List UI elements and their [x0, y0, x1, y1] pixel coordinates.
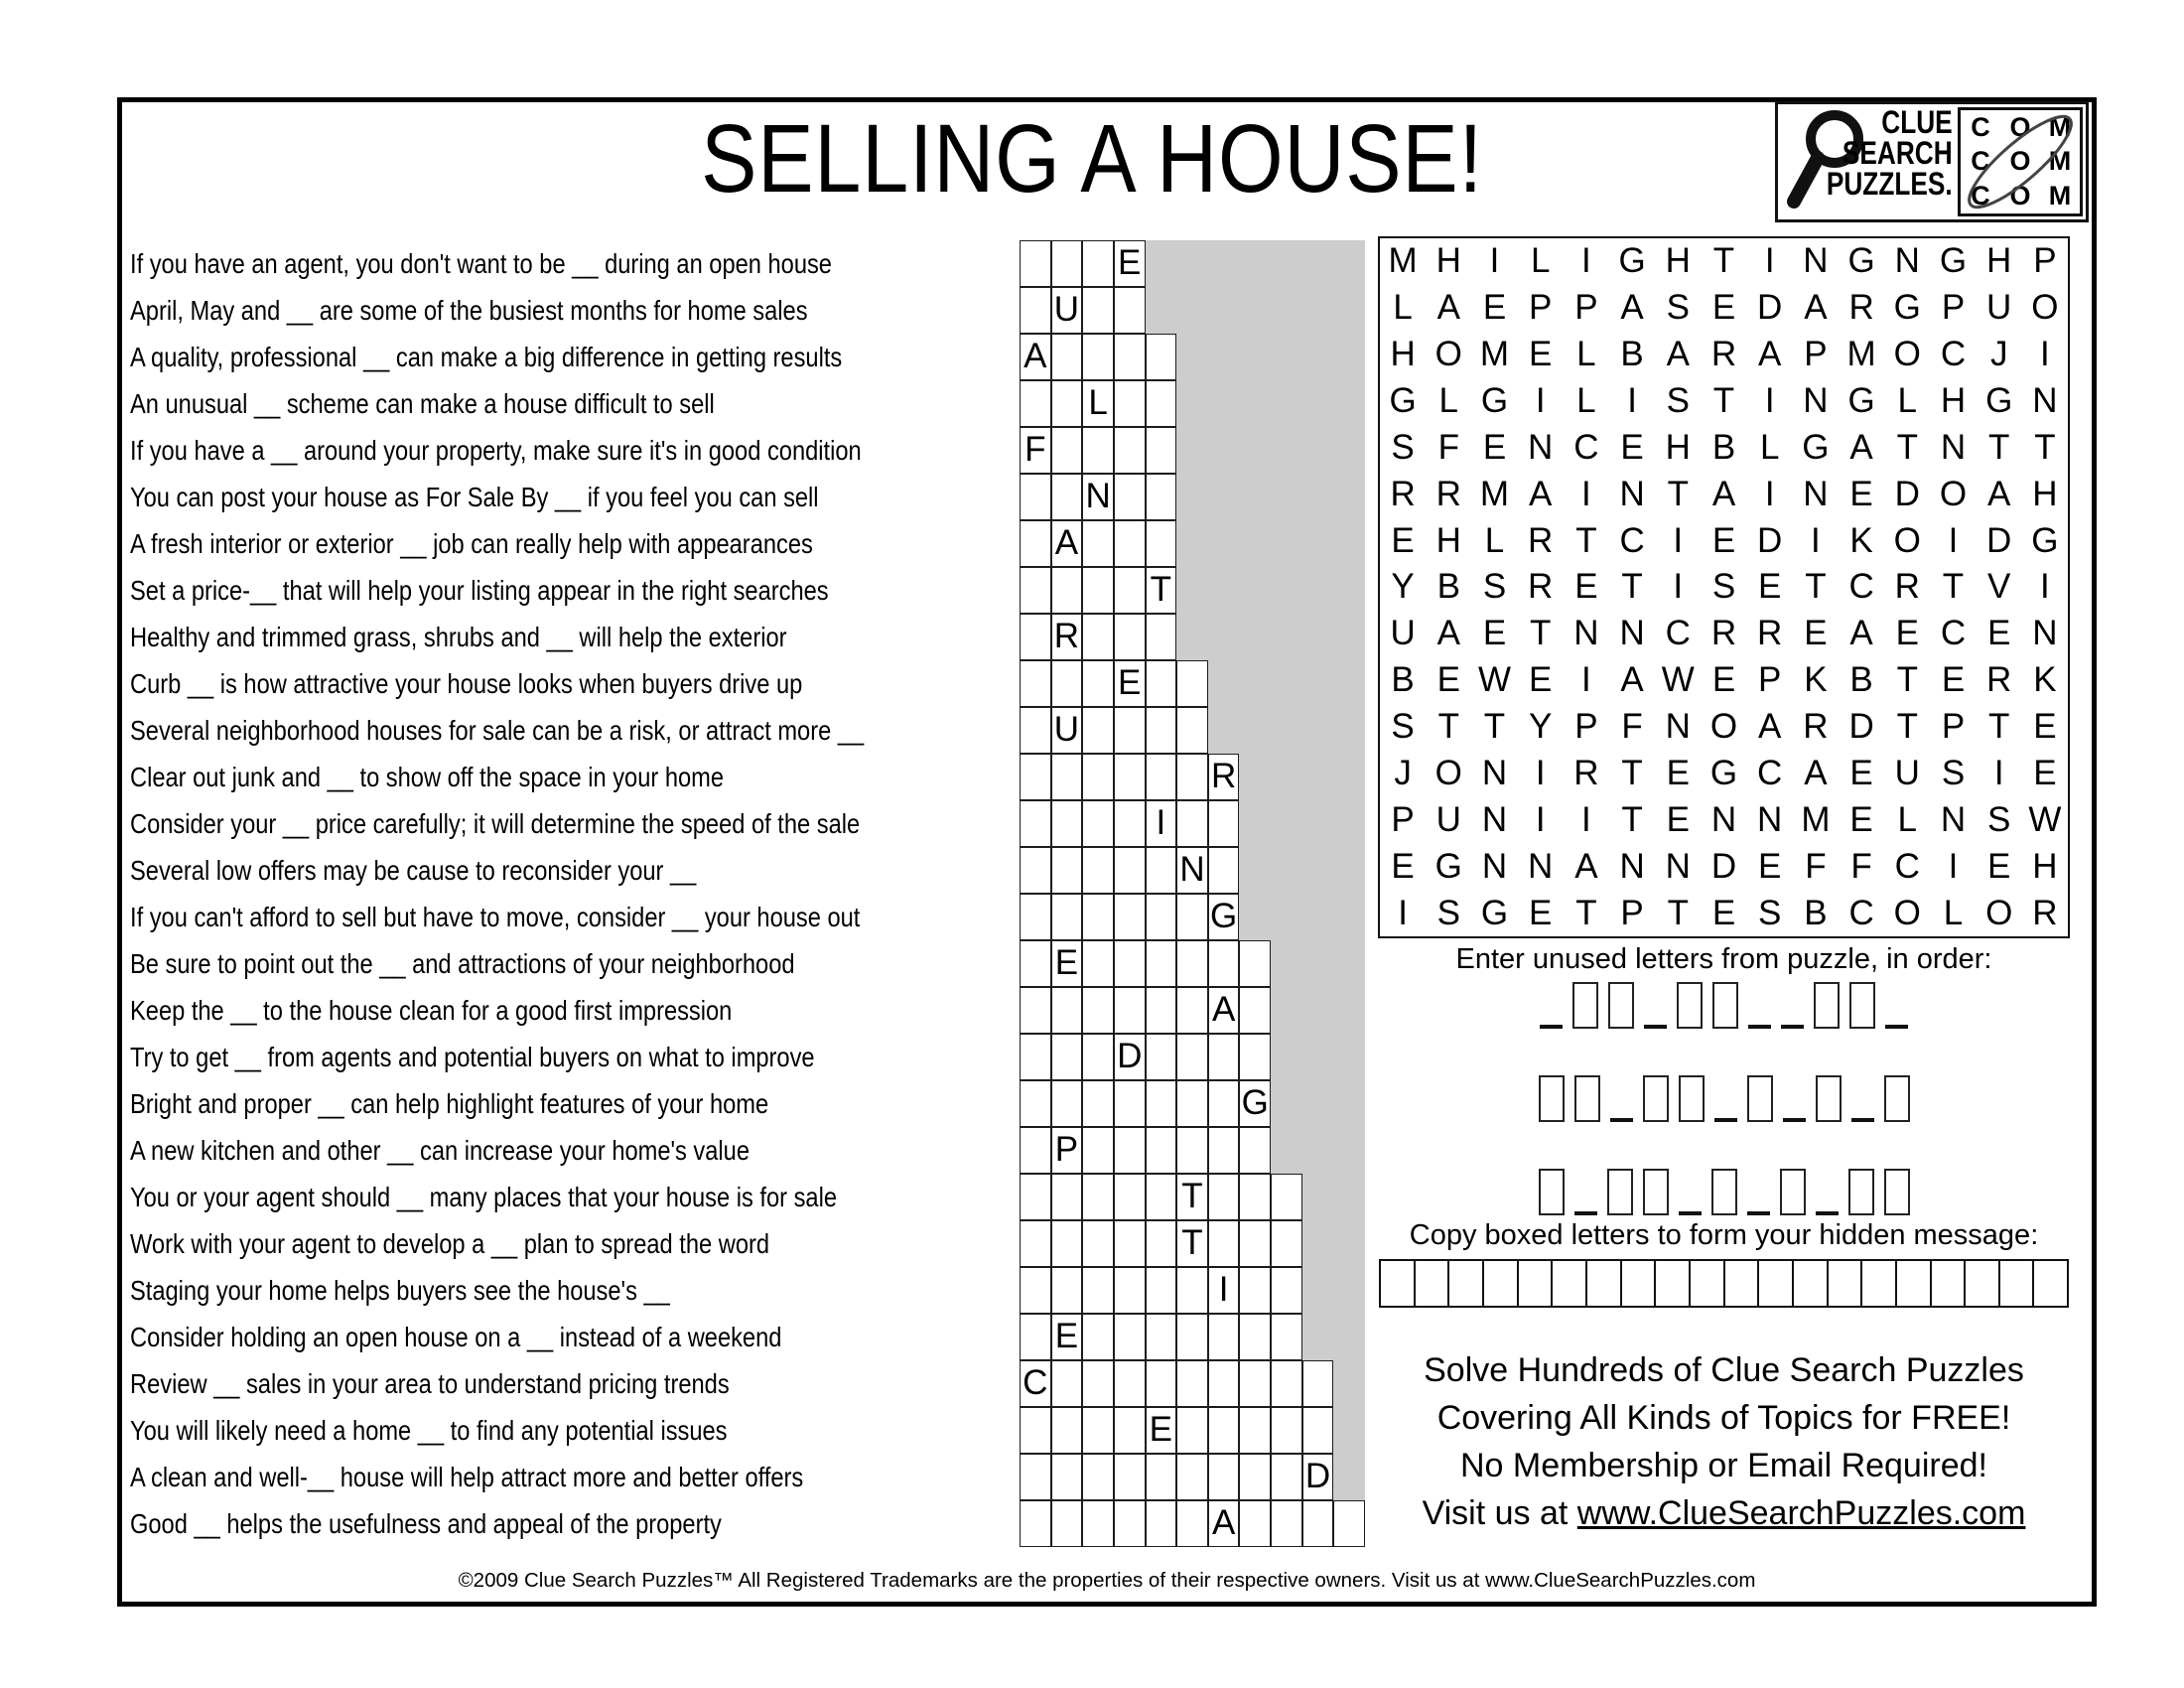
- wordsearch-letter[interactable]: G: [1930, 238, 1976, 285]
- wordsearch-letter[interactable]: O: [1930, 471, 1976, 517]
- boxed-letter-slot[interactable]: [1607, 1169, 1633, 1215]
- crossword-cell[interactable]: [1114, 287, 1146, 334]
- crossword-cell[interactable]: [1114, 1454, 1146, 1500]
- crossword-cell[interactable]: [1176, 707, 1208, 754]
- wordsearch-letter[interactable]: A: [1793, 285, 1839, 332]
- crossword-cell[interactable]: [1302, 1500, 1334, 1547]
- boxed-letter-slot[interactable]: [1608, 982, 1634, 1029]
- wordsearch-letter[interactable]: S: [1977, 796, 2022, 843]
- wordsearch-letter[interactable]: N: [1609, 843, 1655, 890]
- crossword-cell[interactable]: [1114, 1500, 1146, 1547]
- crossword-cell[interactable]: [1082, 800, 1114, 847]
- crossword-cell[interactable]: [1146, 894, 1177, 940]
- wordsearch-letter[interactable]: A: [1839, 611, 1884, 657]
- wordsearch-letter[interactable]: L: [1930, 890, 1976, 936]
- wordsearch-letter[interactable]: B: [1839, 657, 1884, 704]
- wordsearch-letter[interactable]: H: [1426, 517, 1471, 564]
- wordsearch-letter[interactable]: A: [1426, 285, 1471, 332]
- crossword-cell[interactable]: [1146, 427, 1177, 474]
- wordsearch-letter[interactable]: E: [2022, 704, 2068, 751]
- wordsearch-letter[interactable]: T: [1701, 378, 1746, 425]
- hidden-message-cell[interactable]: [1794, 1261, 1829, 1306]
- wordsearch-letter[interactable]: P: [1793, 332, 1839, 378]
- crossword-cell[interactable]: [1082, 520, 1114, 567]
- wordsearch-letter[interactable]: P: [2022, 238, 2068, 285]
- crossword-cell[interactable]: [1020, 800, 1051, 847]
- boxed-letter-slot[interactable]: [1780, 1169, 1806, 1215]
- crossword-cell[interactable]: E: [1146, 1407, 1177, 1454]
- wordsearch-letter[interactable]: J: [1977, 332, 2022, 378]
- wordsearch-letter[interactable]: I: [1564, 238, 1609, 285]
- crossword-cell[interactable]: [1208, 1314, 1240, 1360]
- boxed-letter-slot[interactable]: [1643, 1075, 1669, 1122]
- crossword-cell[interactable]: [1239, 1034, 1271, 1080]
- wordsearch-letter[interactable]: D: [1839, 704, 1884, 751]
- crossword-cell[interactable]: [1082, 240, 1114, 287]
- wordsearch-letter[interactable]: I: [1655, 517, 1701, 564]
- wordsearch-letter[interactable]: E: [1518, 890, 1564, 936]
- crossword-cell[interactable]: A: [1208, 987, 1240, 1034]
- crossword-cell[interactable]: [1020, 1500, 1051, 1547]
- crossword-cell[interactable]: [1239, 1127, 1271, 1174]
- wordsearch-letter[interactable]: N: [1793, 238, 1839, 285]
- blank-letter-slot[interactable]: [1644, 1025, 1667, 1029]
- crossword-cell[interactable]: [1146, 1220, 1177, 1267]
- wordsearch-letter[interactable]: T: [1518, 611, 1564, 657]
- crossword-cell[interactable]: [1239, 1314, 1271, 1360]
- wordsearch-letter[interactable]: E: [1930, 657, 1976, 704]
- crossword-cell[interactable]: [1082, 1454, 1114, 1500]
- wordsearch-letter[interactable]: T: [1884, 704, 1930, 751]
- crossword-cell[interactable]: E: [1051, 940, 1083, 987]
- wordsearch-letter[interactable]: T: [1609, 751, 1655, 797]
- hidden-message-cell[interactable]: [1656, 1261, 1691, 1306]
- wordsearch-letter[interactable]: N: [1564, 611, 1609, 657]
- crossword-cell[interactable]: T: [1176, 1220, 1208, 1267]
- crossword-cell[interactable]: [1020, 614, 1051, 660]
- crossword-cell[interactable]: N: [1176, 847, 1208, 894]
- crossword-cell[interactable]: [1082, 287, 1114, 334]
- crossword-cell[interactable]: [1176, 894, 1208, 940]
- wordsearch-letter[interactable]: F: [1793, 843, 1839, 890]
- crossword-cell[interactable]: U: [1051, 707, 1083, 754]
- crossword-cell[interactable]: [1146, 1127, 1177, 1174]
- wordsearch-letter[interactable]: W: [1655, 657, 1701, 704]
- crossword-cell[interactable]: [1146, 1034, 1177, 1080]
- crossword-cell[interactable]: [1020, 707, 1051, 754]
- wordsearch-letter[interactable]: O: [2022, 285, 2068, 332]
- crossword-cell[interactable]: [1114, 1314, 1146, 1360]
- crossword-cell[interactable]: [1082, 1500, 1114, 1547]
- promo-website-link[interactable]: www.ClueSearchPuzzles.com: [1577, 1494, 2026, 1532]
- boxed-letter-slot[interactable]: [1884, 1075, 1910, 1122]
- wordsearch-letter[interactable]: G: [1793, 424, 1839, 471]
- wordsearch-letter[interactable]: N: [1518, 424, 1564, 471]
- crossword-cell[interactable]: [1302, 1407, 1334, 1454]
- wordsearch-letter[interactable]: C: [1655, 611, 1701, 657]
- wordsearch-letter[interactable]: T: [1884, 424, 1930, 471]
- wordsearch-letter[interactable]: I: [1471, 238, 1517, 285]
- crossword-cell[interactable]: [1146, 334, 1177, 380]
- crossword-cell[interactable]: [1176, 754, 1208, 800]
- crossword-cell[interactable]: [1239, 1174, 1271, 1220]
- wordsearch-letter[interactable]: O: [1977, 890, 2022, 936]
- crossword-cell[interactable]: [1082, 427, 1114, 474]
- wordsearch-letter[interactable]: I: [1977, 751, 2022, 797]
- wordsearch-letter[interactable]: E: [1564, 564, 1609, 611]
- blank-letter-slot[interactable]: [1781, 1025, 1804, 1029]
- wordsearch-letter[interactable]: R: [1747, 611, 1793, 657]
- crossword-cell[interactable]: [1146, 1314, 1177, 1360]
- wordsearch-letter[interactable]: G: [1471, 890, 1517, 936]
- wordsearch-letter[interactable]: S: [1426, 890, 1471, 936]
- wordsearch-letter[interactable]: R: [2022, 890, 2068, 936]
- wordsearch-letter[interactable]: E: [1839, 796, 1884, 843]
- wordsearch-letter[interactable]: G: [1471, 378, 1517, 425]
- crossword-cell[interactable]: [1114, 1407, 1146, 1454]
- crossword-cell[interactable]: C: [1020, 1360, 1051, 1407]
- crossword-cell[interactable]: T: [1146, 567, 1177, 614]
- wordsearch-letter[interactable]: Y: [1518, 704, 1564, 751]
- wordsearch-letter[interactable]: T: [1884, 657, 1930, 704]
- wordsearch-letter[interactable]: I: [2022, 332, 2068, 378]
- wordsearch-letter[interactable]: D: [1747, 517, 1793, 564]
- crossword-cell[interactable]: [1051, 1500, 1083, 1547]
- wordsearch-letter[interactable]: B: [1426, 564, 1471, 611]
- hidden-message-cell[interactable]: [1449, 1261, 1484, 1306]
- blank-letter-slot[interactable]: [1783, 1118, 1806, 1122]
- wordsearch-letter[interactable]: N: [1655, 843, 1701, 890]
- wordsearch-letter[interactable]: I: [1930, 517, 1976, 564]
- crossword-cell[interactable]: [1114, 754, 1146, 800]
- crossword-cell[interactable]: R: [1208, 754, 1240, 800]
- wordsearch-letter[interactable]: N: [1930, 424, 1976, 471]
- crossword-cell[interactable]: [1114, 334, 1146, 380]
- wordsearch-letter[interactable]: J: [1380, 751, 1426, 797]
- wordsearch-letter[interactable]: A: [1426, 611, 1471, 657]
- crossword-cell[interactable]: [1208, 1080, 1240, 1127]
- crossword-cell[interactable]: [1114, 847, 1146, 894]
- wordsearch-letter[interactable]: N: [1701, 796, 1746, 843]
- crossword-cell[interactable]: [1051, 380, 1083, 427]
- crossword-cell[interactable]: [1082, 614, 1114, 660]
- hidden-message-cell[interactable]: [1862, 1261, 1897, 1306]
- hidden-message-cell[interactable]: [2000, 1261, 2035, 1306]
- crossword-cell[interactable]: [1208, 940, 1240, 987]
- wordsearch-letter[interactable]: I: [2022, 564, 2068, 611]
- hidden-message-cell[interactable]: [1759, 1261, 1794, 1306]
- wordsearch-letter[interactable]: T: [1564, 890, 1609, 936]
- hidden-message-cell[interactable]: [2034, 1261, 2067, 1306]
- crossword-cell[interactable]: R: [1051, 614, 1083, 660]
- wordsearch-letter[interactable]: A: [1793, 751, 1839, 797]
- crossword-cell[interactable]: [1239, 1407, 1271, 1454]
- crossword-cell[interactable]: [1146, 660, 1177, 707]
- wordsearch-letter[interactable]: E: [1471, 285, 1517, 332]
- crossword-cell[interactable]: [1176, 1314, 1208, 1360]
- wordsearch-letter[interactable]: A: [1518, 471, 1564, 517]
- crossword-cell[interactable]: [1114, 1174, 1146, 1220]
- crossword-cell[interactable]: [1051, 1267, 1083, 1314]
- wordsearch-letter[interactable]: E: [2022, 751, 2068, 797]
- wordsearch-letter[interactable]: I: [1518, 378, 1564, 425]
- crossword-cell[interactable]: [1020, 1080, 1051, 1127]
- wordsearch-letter[interactable]: T: [1930, 564, 1976, 611]
- hidden-message-cell[interactable]: [1691, 1261, 1725, 1306]
- crossword-cell[interactable]: [1051, 987, 1083, 1034]
- crossword-cell[interactable]: [1051, 1080, 1083, 1127]
- hidden-message-cell[interactable]: [1553, 1261, 1587, 1306]
- crossword-cell[interactable]: [1051, 240, 1083, 287]
- crossword-cell[interactable]: [1020, 660, 1051, 707]
- crossword-cell[interactable]: [1146, 847, 1177, 894]
- crossword-cell[interactable]: [1146, 380, 1177, 427]
- wordsearch-letter[interactable]: S: [1655, 285, 1701, 332]
- crossword-cell[interactable]: [1051, 1034, 1083, 1080]
- wordsearch-letter[interactable]: L: [1884, 796, 1930, 843]
- wordsearch-letter[interactable]: T: [1655, 471, 1701, 517]
- blank-letter-slot[interactable]: [1574, 1211, 1597, 1215]
- wordsearch-letter[interactable]: N: [1793, 378, 1839, 425]
- crossword-cell[interactable]: [1082, 754, 1114, 800]
- crossword-cell[interactable]: [1114, 800, 1146, 847]
- blank-letter-slot[interactable]: [1851, 1118, 1874, 1122]
- crossword-cell[interactable]: [1239, 987, 1271, 1034]
- crossword-cell[interactable]: [1208, 1034, 1240, 1080]
- boxed-letter-slot[interactable]: [1677, 982, 1703, 1029]
- wordsearch-letter[interactable]: S: [1655, 378, 1701, 425]
- wordsearch-letter[interactable]: S: [1701, 564, 1746, 611]
- blank-letter-slot[interactable]: [1679, 1211, 1702, 1215]
- wordsearch-letter[interactable]: L: [1747, 424, 1793, 471]
- wordsearch-letter[interactable]: P: [1609, 890, 1655, 936]
- hidden-message-cell[interactable]: [1519, 1261, 1554, 1306]
- wordsearch-letter[interactable]: T: [1564, 517, 1609, 564]
- wordsearch-letter[interactable]: C: [1564, 424, 1609, 471]
- wordsearch-letter[interactable]: A: [1609, 285, 1655, 332]
- crossword-cell[interactable]: [1082, 1127, 1114, 1174]
- wordsearch-letter[interactable]: I: [1518, 751, 1564, 797]
- wordsearch-letter[interactable]: E: [1518, 657, 1564, 704]
- wordsearch-letter[interactable]: E: [1839, 751, 1884, 797]
- wordsearch-letter[interactable]: E: [1655, 751, 1701, 797]
- wordsearch-letter[interactable]: T: [1793, 564, 1839, 611]
- wordsearch-letter[interactable]: T: [1977, 424, 2022, 471]
- wordsearch-letter[interactable]: R: [1564, 751, 1609, 797]
- crossword-cell[interactable]: [1114, 567, 1146, 614]
- crossword-cell[interactable]: [1208, 1360, 1240, 1407]
- wordsearch-letter[interactable]: A: [1655, 332, 1701, 378]
- wordsearch-letter[interactable]: I: [1747, 378, 1793, 425]
- boxed-letter-slot[interactable]: [1572, 982, 1598, 1029]
- wordsearch-letter[interactable]: I: [1930, 843, 1976, 890]
- wordsearch-letter[interactable]: S: [1380, 424, 1426, 471]
- wordsearch-letter[interactable]: R: [1518, 517, 1564, 564]
- blank-letter-slot[interactable]: [1714, 1118, 1737, 1122]
- hidden-message-cell[interactable]: [1416, 1261, 1450, 1306]
- wordsearch-letter[interactable]: R: [1884, 564, 1930, 611]
- wordsearch-letter[interactable]: P: [1564, 704, 1609, 751]
- crossword-cell[interactable]: [1051, 1174, 1083, 1220]
- boxed-letter-slot[interactable]: [1643, 1169, 1669, 1215]
- crossword-cell[interactable]: [1051, 847, 1083, 894]
- wordsearch-letter[interactable]: F: [1839, 843, 1884, 890]
- wordsearch-letter[interactable]: A: [1564, 843, 1609, 890]
- crossword-cell[interactable]: [1020, 1220, 1051, 1267]
- wordsearch-letter[interactable]: I: [1564, 471, 1609, 517]
- crossword-cell[interactable]: E: [1114, 240, 1146, 287]
- wordsearch-letter[interactable]: E: [1977, 611, 2022, 657]
- wordsearch-letter[interactable]: O: [1884, 517, 1930, 564]
- wordsearch-letter[interactable]: E: [1793, 611, 1839, 657]
- boxed-letter-slot[interactable]: [1679, 1075, 1705, 1122]
- crossword-cell[interactable]: [1020, 474, 1051, 520]
- crossword-cell[interactable]: [1051, 567, 1083, 614]
- crossword-cell[interactable]: [1051, 754, 1083, 800]
- crossword-cell[interactable]: I: [1208, 1267, 1240, 1314]
- wordsearch-letter[interactable]: E: [1380, 843, 1426, 890]
- wordsearch-letter[interactable]: N: [1793, 471, 1839, 517]
- crossword-cell[interactable]: N: [1082, 474, 1114, 520]
- wordsearch-letter[interactable]: G: [1701, 751, 1746, 797]
- crossword-cell[interactable]: [1051, 1360, 1083, 1407]
- crossword-cell[interactable]: [1082, 1314, 1114, 1360]
- crossword-cell[interactable]: [1176, 1500, 1208, 1547]
- crossword-cell[interactable]: L: [1082, 380, 1114, 427]
- crossword-cell[interactable]: G: [1239, 1080, 1271, 1127]
- wordsearch-letter[interactable]: R: [1793, 704, 1839, 751]
- wordsearch-letter[interactable]: U: [1884, 751, 1930, 797]
- wordsearch-letter[interactable]: B: [1701, 424, 1746, 471]
- wordsearch-letter[interactable]: E: [1747, 843, 1793, 890]
- blank-letter-slot[interactable]: [1816, 1211, 1839, 1215]
- wordsearch-letter[interactable]: N: [1930, 796, 1976, 843]
- wordsearch-letter[interactable]: M: [1793, 796, 1839, 843]
- crossword-cell[interactable]: A: [1208, 1500, 1240, 1547]
- wordsearch-letter[interactable]: L: [1564, 378, 1609, 425]
- wordsearch-letter[interactable]: S: [1930, 751, 1976, 797]
- crossword-cell[interactable]: [1239, 1267, 1271, 1314]
- crossword-cell[interactable]: [1208, 1127, 1240, 1174]
- wordsearch-letter[interactable]: A: [1701, 471, 1746, 517]
- crossword-cell[interactable]: [1082, 567, 1114, 614]
- crossword-cell[interactable]: [1208, 1407, 1240, 1454]
- wordsearch-letter[interactable]: T: [1701, 238, 1746, 285]
- boxed-letter-slot[interactable]: [1539, 1075, 1565, 1122]
- wordsearch-letter[interactable]: U: [1977, 285, 2022, 332]
- wordsearch-letter[interactable]: H: [1977, 238, 2022, 285]
- crossword-cell[interactable]: [1146, 1360, 1177, 1407]
- wordsearch-letter[interactable]: D: [1977, 517, 2022, 564]
- wordsearch-letter[interactable]: H: [1655, 424, 1701, 471]
- wordsearch-letter[interactable]: I: [1655, 564, 1701, 611]
- wordsearch-letter[interactable]: O: [1426, 332, 1471, 378]
- crossword-cell[interactable]: [1146, 987, 1177, 1034]
- wordsearch-letter[interactable]: K: [2022, 657, 2068, 704]
- crossword-cell[interactable]: [1082, 707, 1114, 754]
- wordsearch-letter[interactable]: T: [1426, 704, 1471, 751]
- crossword-cell[interactable]: [1239, 1454, 1271, 1500]
- wordsearch-letter[interactable]: C: [1930, 332, 1976, 378]
- wordsearch-letter[interactable]: H: [1655, 238, 1701, 285]
- wordsearch-letter[interactable]: C: [1839, 564, 1884, 611]
- crossword-cell[interactable]: [1082, 660, 1114, 707]
- crossword-cell[interactable]: [1114, 474, 1146, 520]
- crossword-cell[interactable]: [1239, 1360, 1271, 1407]
- crossword-cell[interactable]: [1051, 660, 1083, 707]
- crossword-cell[interactable]: E: [1114, 660, 1146, 707]
- wordsearch-letter[interactable]: A: [1839, 424, 1884, 471]
- wordsearch-letter[interactable]: A: [1747, 332, 1793, 378]
- wordsearch-letter[interactable]: N: [1471, 751, 1517, 797]
- wordsearch-letter[interactable]: E: [1518, 332, 1564, 378]
- crossword-cell[interactable]: [1176, 940, 1208, 987]
- wordsearch-letter[interactable]: Y: [1380, 564, 1426, 611]
- crossword-cell[interactable]: [1020, 380, 1051, 427]
- boxed-letter-slot[interactable]: [1712, 982, 1738, 1029]
- crossword-cell[interactable]: [1146, 1500, 1177, 1547]
- crossword-cell[interactable]: D: [1302, 1454, 1334, 1500]
- wordsearch-letter[interactable]: E: [1701, 517, 1746, 564]
- wordsearch-letter[interactable]: E: [1380, 517, 1426, 564]
- wordsearch-letter[interactable]: N: [1884, 238, 1930, 285]
- hidden-message-cell[interactable]: [1587, 1261, 1622, 1306]
- crossword-cell[interactable]: [1176, 987, 1208, 1034]
- crossword-cell[interactable]: [1051, 474, 1083, 520]
- crossword-cell[interactable]: [1114, 707, 1146, 754]
- boxed-letter-slot[interactable]: [1849, 982, 1875, 1029]
- wordsearch-letter[interactable]: D: [1884, 471, 1930, 517]
- hidden-message-cell[interactable]: [1484, 1261, 1519, 1306]
- wordsearch-letter[interactable]: P: [1930, 704, 1976, 751]
- wordsearch-letter[interactable]: N: [1471, 796, 1517, 843]
- wordsearch-letter[interactable]: C: [1609, 517, 1655, 564]
- boxed-letter-slot[interactable]: [1711, 1169, 1737, 1215]
- crossword-cell[interactable]: [1114, 427, 1146, 474]
- crossword-cell[interactable]: [1051, 894, 1083, 940]
- wordsearch-letter[interactable]: H: [1930, 378, 1976, 425]
- wordsearch-letter[interactable]: M: [1839, 332, 1884, 378]
- crossword-cell[interactable]: U: [1051, 287, 1083, 334]
- crossword-cell[interactable]: [1208, 847, 1240, 894]
- crossword-cell[interactable]: [1176, 660, 1208, 707]
- crossword-cell[interactable]: [1082, 847, 1114, 894]
- wordsearch-letter[interactable]: I: [1793, 517, 1839, 564]
- crossword-cell[interactable]: [1082, 1360, 1114, 1407]
- crossword-cell[interactable]: [1020, 1267, 1051, 1314]
- wordsearch-letter[interactable]: W: [1471, 657, 1517, 704]
- wordsearch-letter[interactable]: R: [1426, 471, 1471, 517]
- crossword-cell[interactable]: [1082, 1407, 1114, 1454]
- wordsearch-letter[interactable]: O: [1884, 332, 1930, 378]
- crossword-cell[interactable]: T: [1176, 1174, 1208, 1220]
- wordsearch-letter[interactable]: F: [1426, 424, 1471, 471]
- crossword-cell[interactable]: [1020, 1174, 1051, 1220]
- wordsearch-letter[interactable]: M: [1471, 471, 1517, 517]
- crossword-cell[interactable]: E: [1051, 1314, 1083, 1360]
- crossword-cell[interactable]: [1114, 1220, 1146, 1267]
- crossword-cell[interactable]: [1020, 520, 1051, 567]
- wordsearch-letter[interactable]: E: [1655, 796, 1701, 843]
- wordsearch-letter[interactable]: T: [1609, 564, 1655, 611]
- wordsearch-letter[interactable]: R: [1701, 611, 1746, 657]
- crossword-cell[interactable]: [1020, 1034, 1051, 1080]
- wordsearch-letter[interactable]: O: [1701, 704, 1746, 751]
- crossword-cell[interactable]: [1146, 1174, 1177, 1220]
- wordsearch-letter[interactable]: S: [1747, 890, 1793, 936]
- crossword-cell[interactable]: [1239, 940, 1271, 987]
- crossword-cell[interactable]: [1208, 1220, 1240, 1267]
